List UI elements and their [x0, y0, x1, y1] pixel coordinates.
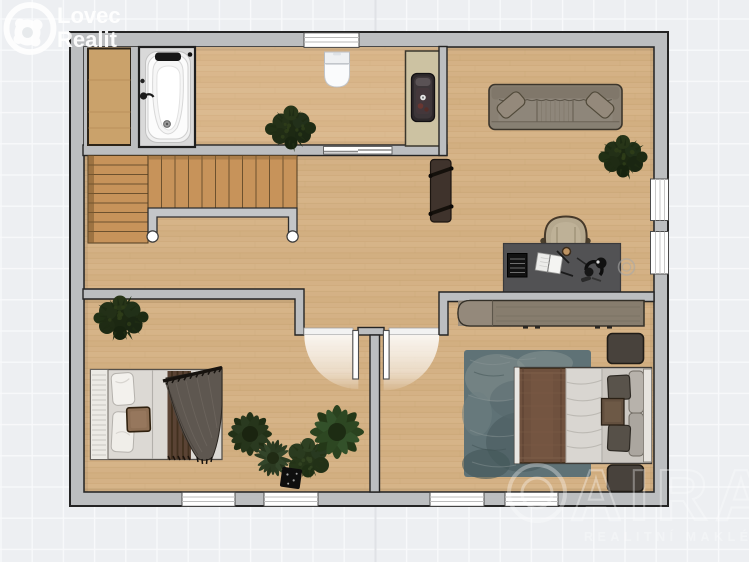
svg-text:AIRA: AIRA: [570, 456, 749, 536]
svg-text:Lovec: Lovec: [57, 3, 121, 28]
svg-text:Realit: Realit: [57, 27, 118, 52]
svg-text:REALITNÍ MAKLÉŘI: REALITNÍ MAKLÉŘI: [584, 529, 749, 544]
